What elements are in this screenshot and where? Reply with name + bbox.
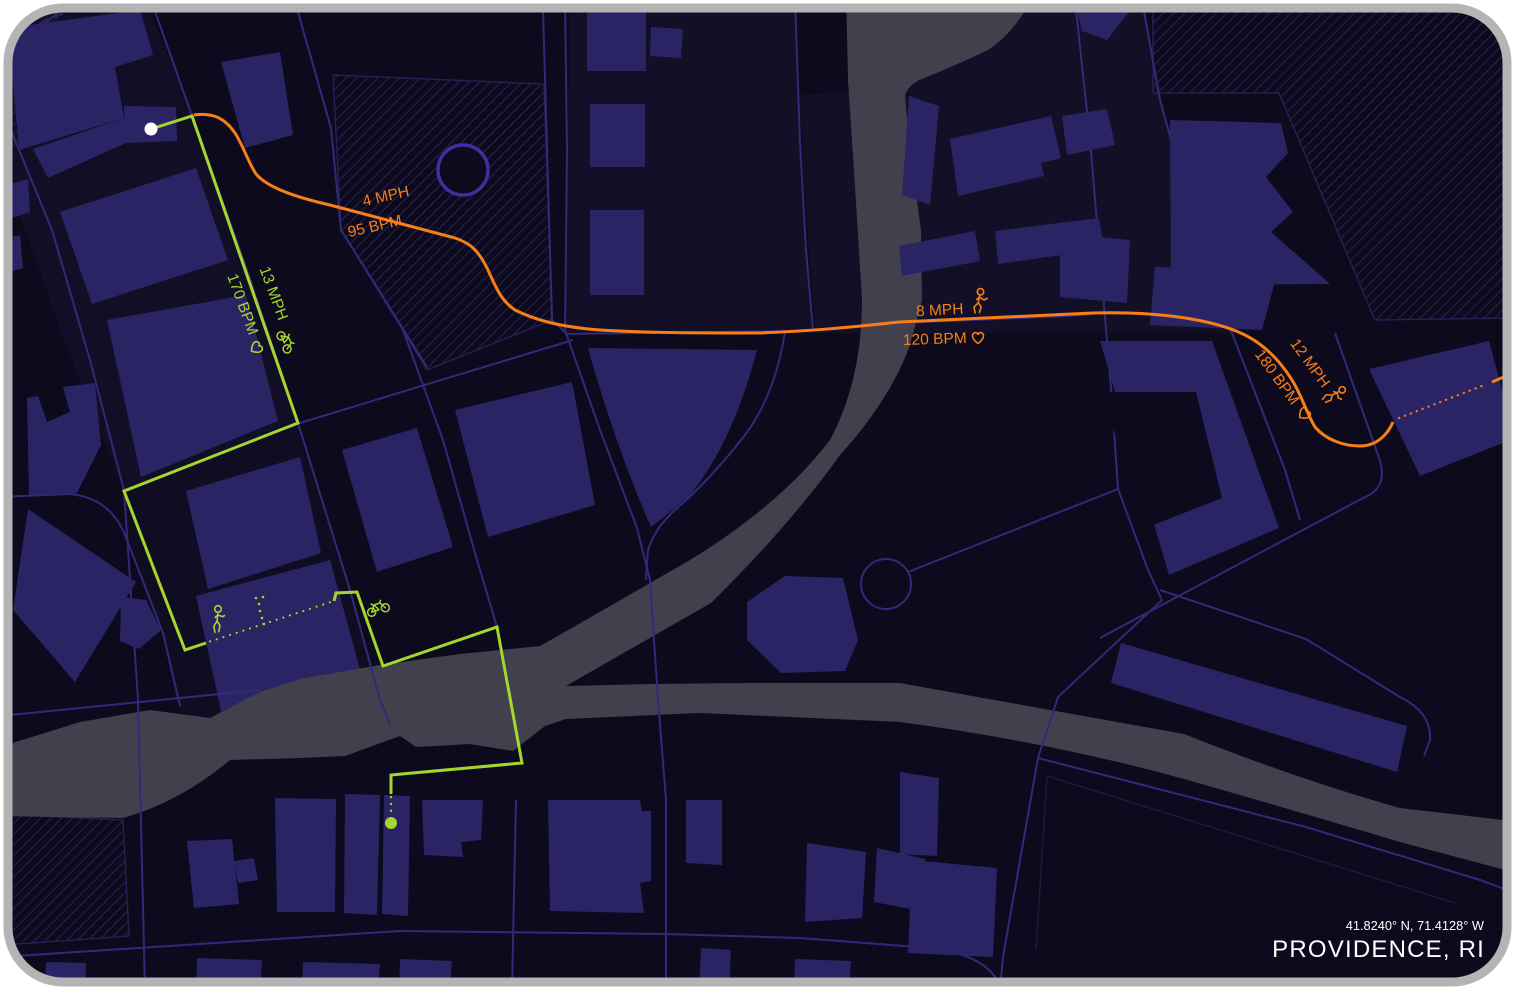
svg-text:120 BPM: 120 BPM — [903, 330, 967, 349]
svg-text:PROVIDENCE, RI: PROVIDENCE, RI — [1272, 936, 1485, 963]
svg-text:41.8240° N, 71.4128° W: 41.8240° N, 71.4128° W — [1346, 918, 1485, 933]
svg-text:8 MPH: 8 MPH — [916, 301, 964, 320]
